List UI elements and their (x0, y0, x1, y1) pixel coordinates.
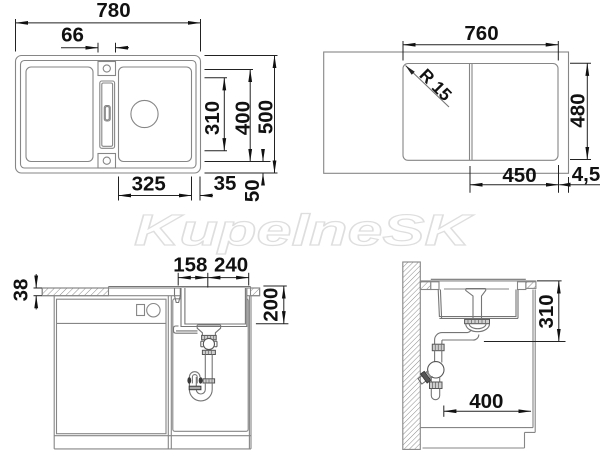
svg-text:66: 66 (61, 24, 84, 47)
svg-text:760: 760 (464, 22, 498, 45)
svg-text:158: 158 (173, 253, 207, 276)
svg-text:35: 35 (214, 172, 237, 195)
svg-text:310: 310 (535, 294, 558, 328)
svg-text:200: 200 (260, 288, 283, 322)
svg-text:780: 780 (96, 0, 130, 22)
svg-text:450: 450 (502, 164, 536, 187)
svg-text:4,5: 4,5 (572, 163, 600, 186)
svg-text:38: 38 (10, 279, 33, 302)
svg-text:325: 325 (132, 173, 166, 196)
svg-text:400: 400 (231, 101, 254, 135)
svg-text:KupelneSK: KupelneSK (134, 206, 475, 255)
svg-text:400: 400 (469, 390, 503, 413)
svg-text:240: 240 (214, 253, 248, 276)
svg-text:480: 480 (567, 93, 590, 127)
svg-text:500: 500 (255, 100, 278, 134)
svg-text:50: 50 (241, 179, 264, 202)
svg-text:310: 310 (201, 101, 224, 135)
